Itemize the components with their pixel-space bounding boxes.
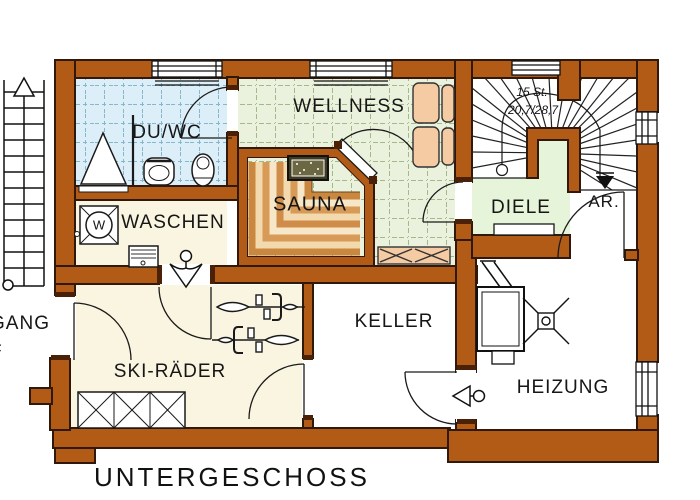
window-right-upper — [636, 112, 657, 144]
floor-plan-drawing — [0, 0, 700, 500]
stair-up-arrow-icon — [14, 78, 34, 96]
room-label-sauna: SAUNA — [273, 194, 347, 217]
washbasin-icon — [144, 158, 174, 185]
sideboard-icon — [494, 224, 554, 235]
room-label-duwc: DU/WC — [132, 122, 201, 144]
room-label-ar: AR. — [588, 192, 619, 212]
room-label-gang: GANG — [0, 313, 50, 335]
room-label-waschen: WASCHEN — [121, 212, 224, 234]
room-label-diele: DIELE — [491, 197, 551, 219]
window-stairs — [512, 61, 560, 75]
room-label-ski: SKI-RÄDER — [114, 361, 226, 383]
toilet-icon — [192, 154, 214, 186]
window-right-lower — [636, 362, 657, 416]
washing-machine-letter: W — [93, 218, 105, 233]
lounger-icon — [413, 83, 439, 123]
room-label-wellness: WELLNESS — [293, 96, 404, 118]
bench-icon — [378, 247, 450, 264]
exterior-stair — [3, 78, 44, 290]
room-label-keller: KELLER — [355, 311, 434, 333]
plan-title: UNTERGESCHOSS — [94, 462, 370, 493]
floor-plan: DU/WC WELLNESS SAUNA WASCHEN DIELE AR. K… — [0, 0, 700, 500]
keller-floor — [313, 283, 456, 428]
room-label-heizung: HEIZUNG — [517, 377, 610, 399]
window-duwc — [152, 61, 222, 85]
shelf-icon — [78, 392, 185, 428]
room-label-gang-partial: F — [0, 341, 3, 361]
window-wellness — [310, 61, 392, 85]
lounger-icon — [413, 127, 439, 167]
stair-count-label: 15 St. — [516, 85, 547, 99]
stair-dimension-label: 20,7/28,7 — [508, 103, 558, 117]
sauna-heater — [288, 156, 328, 180]
dryer-icon — [129, 246, 158, 267]
